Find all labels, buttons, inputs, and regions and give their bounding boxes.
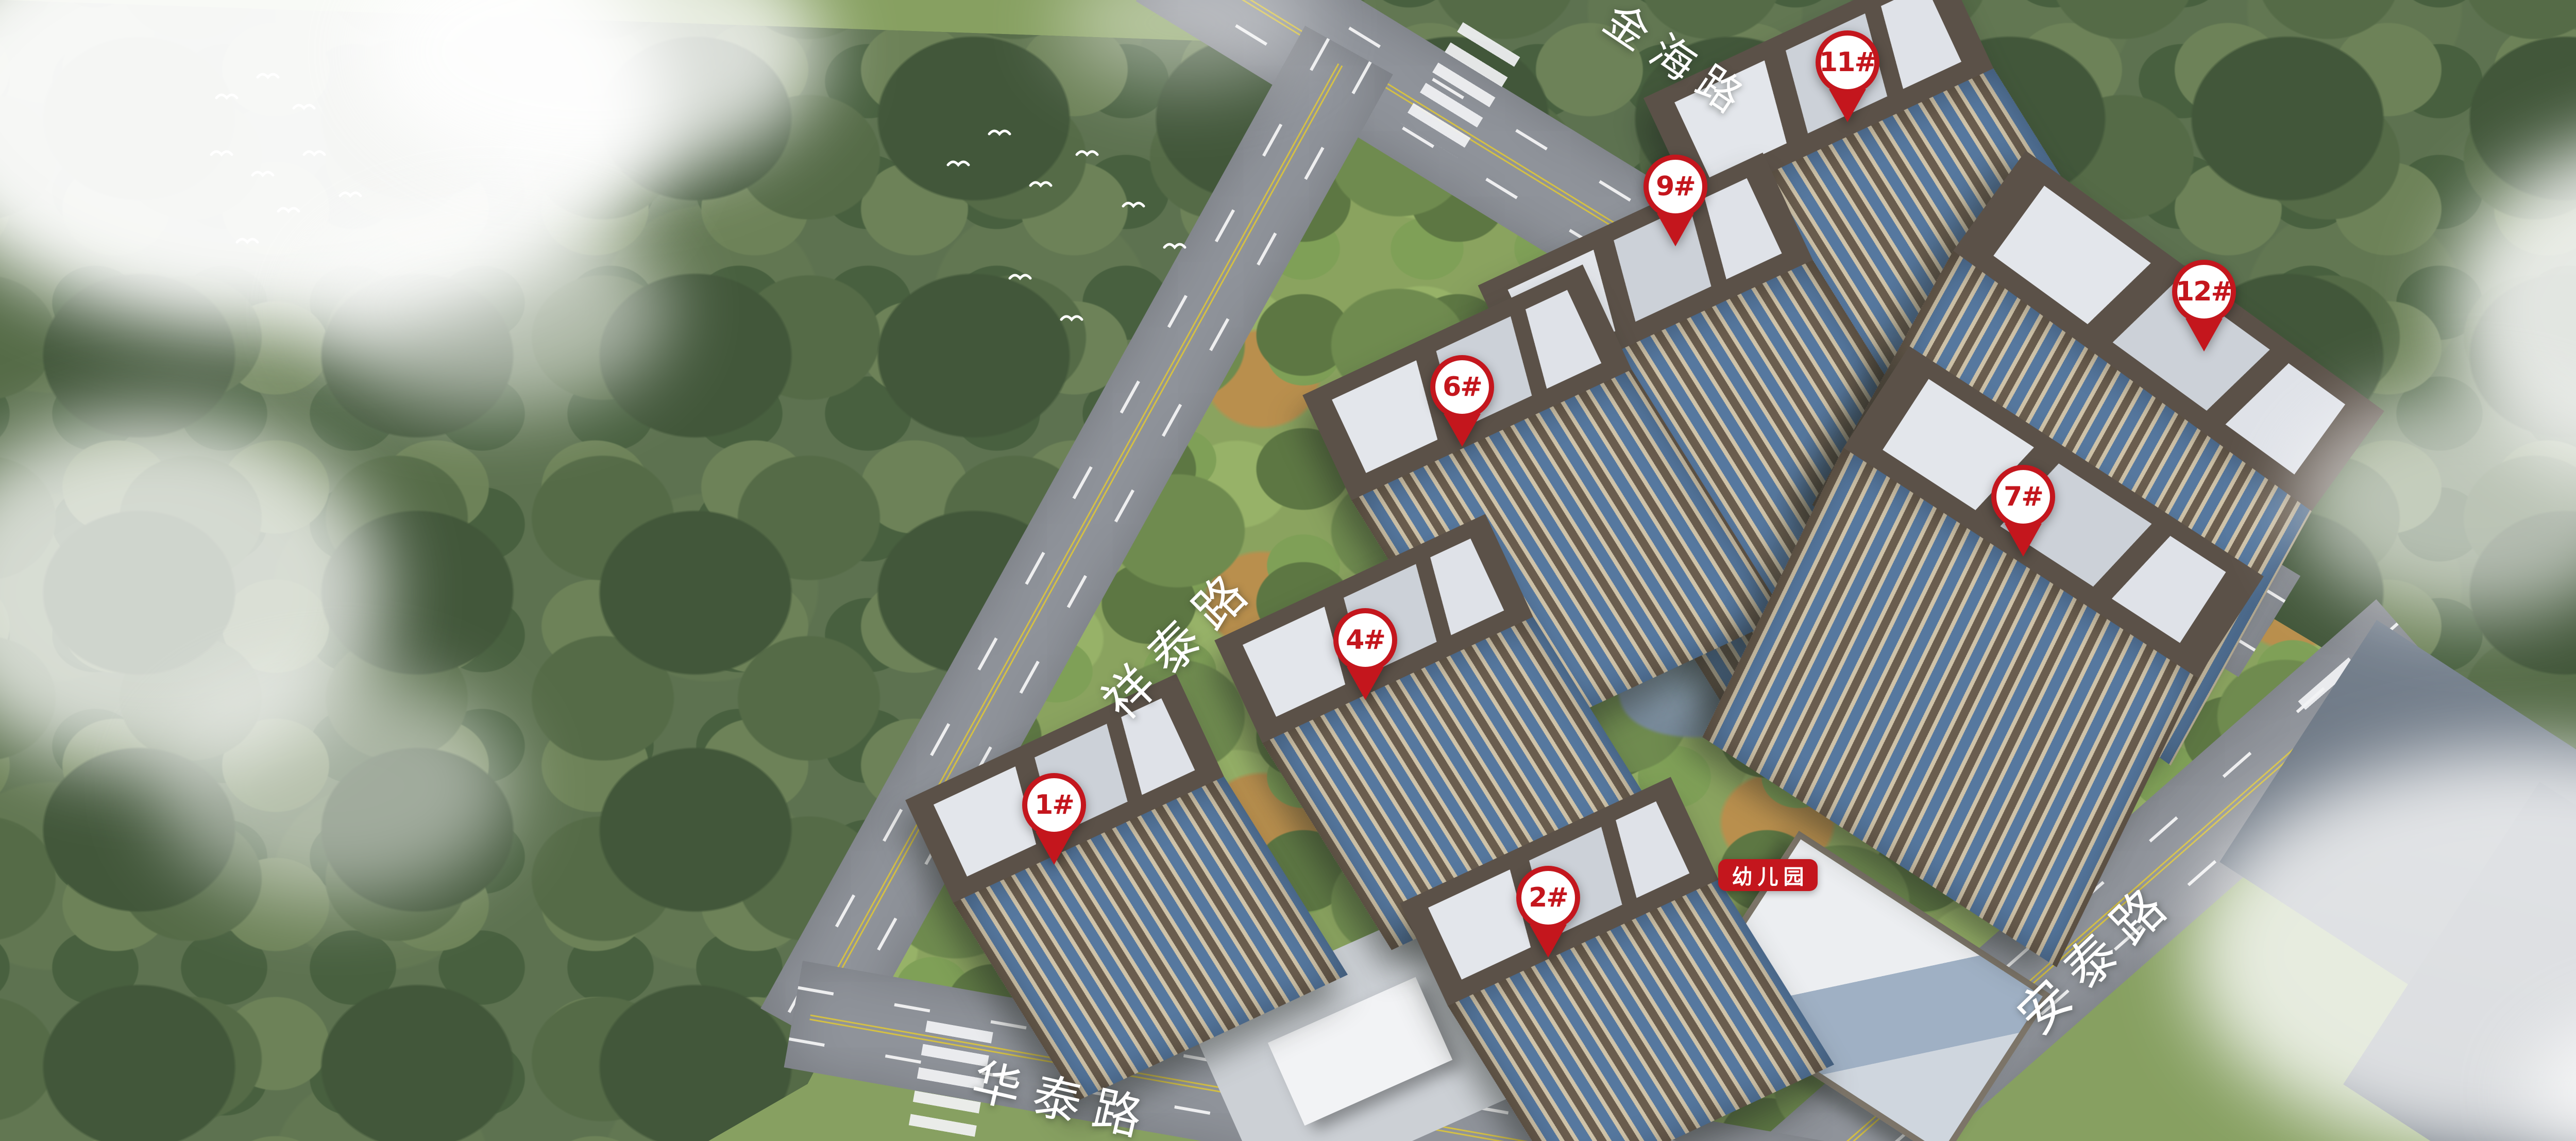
marker-label: 9# (1656, 171, 1695, 202)
marker-label: 1# (1035, 790, 1074, 820)
marker-tail-icon (1657, 213, 1694, 246)
kindergarten-badge[interactable]: 幼儿园 (1718, 859, 1818, 891)
marker-tail-icon (1530, 925, 1567, 958)
marker-label: 11# (1819, 47, 1876, 78)
building-marker-1[interactable]: 1# (1022, 773, 1086, 865)
marker-circle: 6# (1430, 355, 1494, 419)
building-marker-11[interactable]: 11# (1816, 30, 1879, 122)
marker-tail-icon (2005, 524, 2042, 557)
marker-label: 4# (1346, 625, 1385, 656)
building-marker-7[interactable]: 7# (1991, 465, 2055, 557)
marker-circle: 12# (2172, 260, 2236, 324)
building-marker-2[interactable]: 2# (1516, 866, 1580, 958)
marker-circle: 4# (1333, 608, 1397, 672)
building-marker-9[interactable]: 9# (1643, 155, 1707, 246)
aerial-site-rendering: 1# 2# 4# 6# 7# 9# 11# (0, 0, 2576, 1141)
marker-circle: 7# (1991, 465, 2055, 529)
marker-tail-icon (1036, 832, 1073, 865)
marker-label: 6# (1443, 372, 1482, 402)
marker-label: 2# (1529, 882, 1568, 913)
marker-tail-icon (1444, 414, 1481, 447)
marker-circle: 2# (1516, 866, 1580, 930)
marker-circle: 11# (1816, 30, 1879, 94)
birds-flock-icon (155, 31, 1288, 443)
marker-label: 7# (2004, 481, 2043, 512)
entrance-canopy (1268, 977, 1452, 1126)
marker-circle: 9# (1643, 155, 1707, 219)
marker-tail-icon (2185, 318, 2223, 351)
building-marker-6[interactable]: 6# (1430, 355, 1494, 447)
marker-tail-icon (1347, 667, 1384, 700)
building-marker-4[interactable]: 4# (1333, 608, 1397, 700)
marker-circle: 1# (1022, 773, 1086, 837)
marker-tail-icon (1829, 89, 1866, 122)
marker-label: 12# (2176, 276, 2232, 307)
building-marker-12[interactable]: 12# (2172, 260, 2236, 351)
